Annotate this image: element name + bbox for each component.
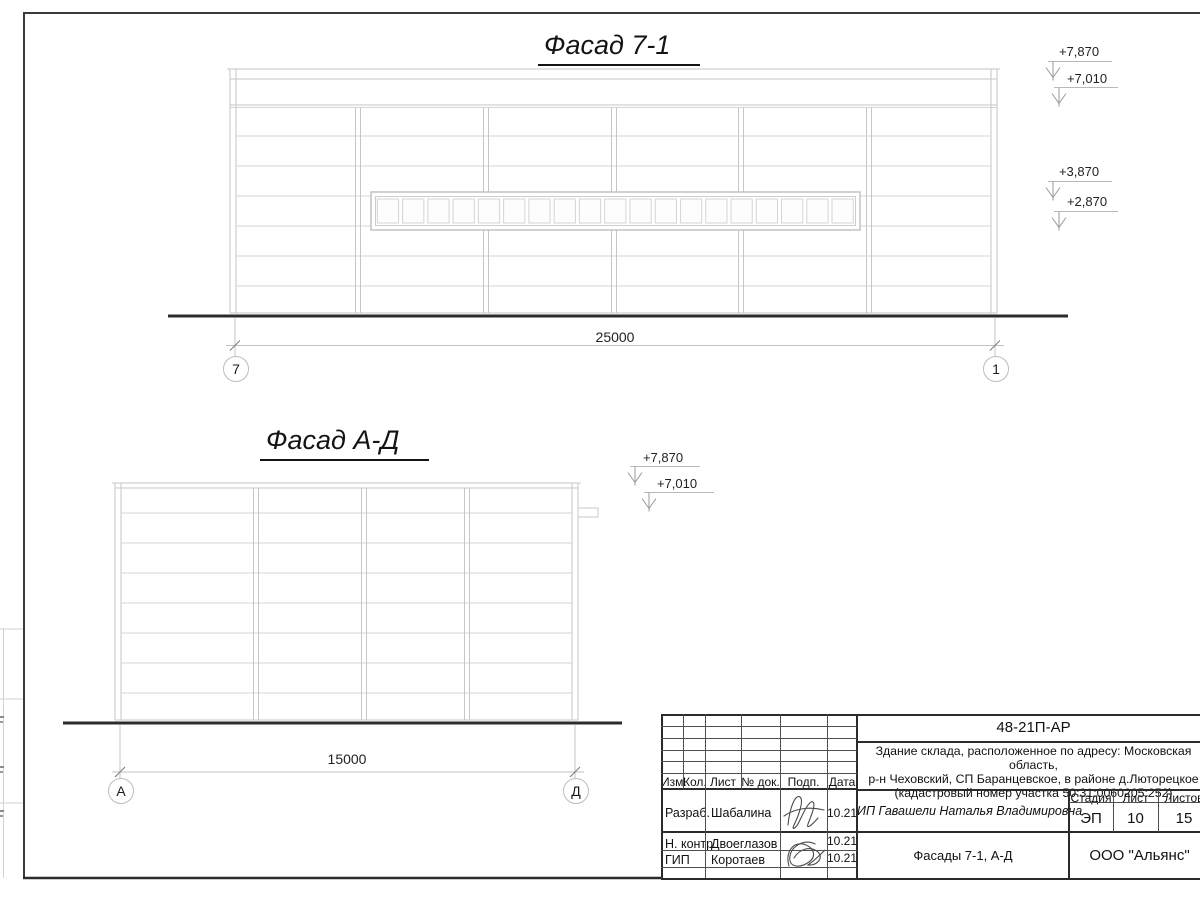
role-date: 10.21 xyxy=(827,806,857,820)
role-name: Коротаев xyxy=(711,853,765,867)
title-block-line xyxy=(780,714,781,878)
title-block-line xyxy=(741,714,742,789)
col-header-podp: Подп. xyxy=(780,775,827,789)
stage-value: ЭП xyxy=(1069,810,1113,827)
company-name: ООО "Альянс" xyxy=(1069,847,1200,864)
signature-icon xyxy=(788,797,818,829)
role-name: Двоеглазов xyxy=(711,837,777,851)
title-block-line xyxy=(1158,790,1159,832)
title-block-line xyxy=(1113,790,1114,832)
col-header-izm: Изм. xyxy=(661,775,683,789)
level-mark-label: +7,870 xyxy=(632,450,694,465)
level-mark-label: +7,010 xyxy=(646,476,708,491)
axis-bubble-d: Д xyxy=(563,778,589,804)
title-block-line xyxy=(827,714,828,878)
title-block-line xyxy=(1069,802,1200,803)
facade-a-d-drawing xyxy=(63,467,714,780)
level-mark-label: +2,870 xyxy=(1056,194,1118,209)
title-block: 48-21П-АР Здание склада, расположенное п… xyxy=(661,714,1200,880)
axis-bubble-a: А xyxy=(108,778,134,804)
level-mark-label: +7,870 xyxy=(1048,44,1110,59)
role-date: 10.21 xyxy=(827,834,857,848)
role-label: Н. контр. xyxy=(665,837,717,851)
title-block-line xyxy=(856,741,1200,743)
drawing-title: Фасады 7-1, А-Д xyxy=(857,848,1069,863)
client-name: ИП Гавашели Наталья Владимировна xyxy=(857,804,1069,818)
sheet-number: 10 xyxy=(1113,810,1158,827)
col-header-doc: № док. xyxy=(741,775,780,789)
role-name: Шабалина xyxy=(711,806,771,820)
title-block-line xyxy=(661,850,857,851)
col-header-data: Дата xyxy=(827,775,857,789)
title-block-line xyxy=(705,714,706,878)
axis-label: 7 xyxy=(232,361,240,377)
facade-a-d-dimension: 15000 xyxy=(297,751,397,767)
title-block-line xyxy=(661,878,1200,880)
left-margin-stamp xyxy=(0,628,23,878)
role-label: ГИП xyxy=(665,853,690,867)
sheets-total: 15 xyxy=(1158,810,1200,827)
title-block-line xyxy=(856,789,1200,791)
axis-bubble-1: 1 xyxy=(983,356,1009,382)
axis-label: 1 xyxy=(992,361,1000,377)
level-mark-label: +7,010 xyxy=(1056,71,1118,86)
title-block-line xyxy=(661,867,857,868)
signature-icon xyxy=(794,849,825,865)
axis-label: Д xyxy=(571,783,580,799)
title-block-line xyxy=(661,831,1200,833)
level-mark-label: +3,870 xyxy=(1048,164,1110,179)
col-header-kol: Кол. xyxy=(683,775,705,789)
facade-7-1-title: Фасад 7-1 xyxy=(538,30,700,66)
title-block-line xyxy=(683,714,684,789)
axis-label: А xyxy=(116,783,125,799)
role-date: 10.21 xyxy=(827,851,857,865)
axis-bubble-7: 7 xyxy=(223,356,249,382)
facade-7-1-drawing xyxy=(168,62,1118,358)
facade-7-1-dimension: 25000 xyxy=(565,329,665,345)
col-header-list: Лист xyxy=(705,775,741,789)
title-block-line xyxy=(1068,790,1070,880)
facade-a-d-title: Фасад А-Д xyxy=(260,425,429,461)
role-label: Разраб. xyxy=(665,806,710,820)
doc-code: 48-21П-АР xyxy=(857,719,1200,736)
drawing-sheet: Фасад 7-1 25000 +7,870 +7,010 +3,870 +2,… xyxy=(0,0,1200,900)
